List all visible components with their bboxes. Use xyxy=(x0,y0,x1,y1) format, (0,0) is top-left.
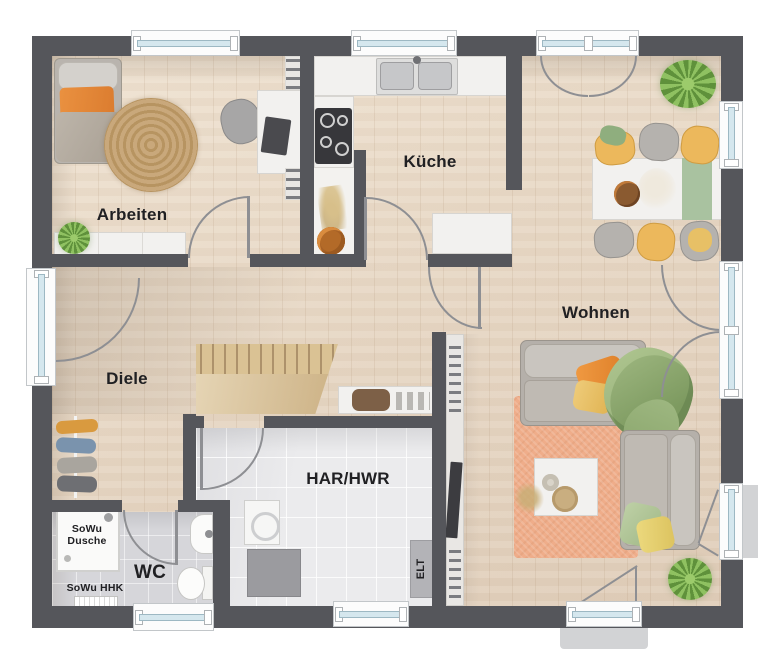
kitchen-cabinet-block xyxy=(432,213,512,254)
label-shower: SoWu Dusche xyxy=(67,523,106,547)
room-label-diele: Diele xyxy=(106,369,148,389)
shower-head xyxy=(104,513,113,522)
wall-wc-utility xyxy=(213,500,230,608)
room-label-har-hwr: HAR/HWR xyxy=(306,469,390,489)
window-study xyxy=(131,30,240,56)
chair-seat-cushion xyxy=(688,228,712,252)
hall-living-door-leaf xyxy=(478,267,481,329)
staircase xyxy=(196,344,338,414)
wc-sink-faucet xyxy=(205,530,213,538)
door-mullion xyxy=(584,36,593,51)
potted-plant-study xyxy=(58,222,90,254)
wall-utility-top-stub xyxy=(196,416,204,428)
room-label-wc: WC xyxy=(134,562,166,584)
wall-utility-top xyxy=(264,416,446,428)
study-door-leaf xyxy=(247,196,250,258)
entrance-door xyxy=(26,268,56,386)
label-shower-line1: SoWu xyxy=(72,523,102,535)
door-mullion xyxy=(724,326,739,335)
wc-door-leaf xyxy=(175,510,178,565)
wall-study-bottom xyxy=(52,254,188,267)
desk-monitor xyxy=(261,116,292,155)
fruit-plate xyxy=(317,227,345,255)
label-elt: ELT xyxy=(415,559,427,580)
wall-closet-divider xyxy=(183,414,196,512)
terrace-step-bottom xyxy=(560,627,648,649)
wall-kitchen-dining xyxy=(506,56,522,190)
wall-study-kitchen xyxy=(300,56,314,266)
wall-wc-top-left xyxy=(52,500,122,512)
hanging-coat-blue xyxy=(56,437,97,454)
table-runner xyxy=(682,158,712,220)
floor-plan: Arbeiten Küche Wohnen Diele HAR/HWR WC S… xyxy=(0,0,775,665)
room-label-kueche: Küche xyxy=(404,152,457,172)
sink-faucet xyxy=(413,56,421,64)
hanging-coat-gray xyxy=(57,456,98,474)
washing-machine xyxy=(244,500,280,545)
french-door-living xyxy=(719,261,743,399)
window-kitchen xyxy=(351,30,457,56)
shoes-on-bench xyxy=(396,392,430,410)
wall-wc-top-right xyxy=(178,500,213,512)
window-wc xyxy=(133,603,214,631)
book-stack xyxy=(449,546,461,598)
cooktop-burner xyxy=(337,115,348,126)
terrace-door-bottom xyxy=(566,601,642,627)
cooktop-burner xyxy=(335,142,349,156)
label-shower-line2: Dusche xyxy=(67,535,106,547)
room-label-wohnen: Wohnen xyxy=(562,303,630,323)
utility-box xyxy=(247,549,301,597)
french-door-dining xyxy=(536,30,639,56)
centerpiece-bowl xyxy=(614,181,640,207)
dried-flower-decor xyxy=(316,184,350,231)
cooktop-burner xyxy=(320,113,335,128)
plant-living-room xyxy=(668,558,712,600)
sink-basin-left xyxy=(380,62,414,90)
bag-on-bench xyxy=(352,389,390,411)
palm-plant-dining xyxy=(660,60,716,108)
wall-hall-top xyxy=(250,254,366,267)
round-jute-rug xyxy=(104,98,198,192)
kitchen-door-leaf xyxy=(364,197,367,260)
dining-chair xyxy=(593,221,635,260)
window-dining-right xyxy=(719,101,743,169)
hanging-coat-dark xyxy=(57,475,98,492)
sofa-vertical-back xyxy=(670,434,696,546)
coffee-table-vase xyxy=(542,474,559,491)
terrace-step-right xyxy=(743,485,758,558)
toilet-bowl xyxy=(177,567,205,600)
cooktop-burner xyxy=(320,136,332,148)
wall-living-utility xyxy=(432,332,446,608)
washer-door xyxy=(251,512,280,541)
book-stack xyxy=(449,342,461,412)
dining-chair xyxy=(638,122,681,163)
utility-door-leaf xyxy=(200,428,203,490)
window-utility xyxy=(333,601,409,627)
room-label-arbeiten: Arbeiten xyxy=(97,205,168,225)
label-heater: SoWu HHK xyxy=(67,582,124,594)
wall-kitchen-stub xyxy=(428,254,512,267)
sink-basin-right xyxy=(418,62,452,90)
coffee-table-tray xyxy=(552,486,578,512)
terrace-door-right xyxy=(719,483,743,560)
centerpiece-flowers xyxy=(638,168,676,210)
shower-drain xyxy=(64,555,71,562)
